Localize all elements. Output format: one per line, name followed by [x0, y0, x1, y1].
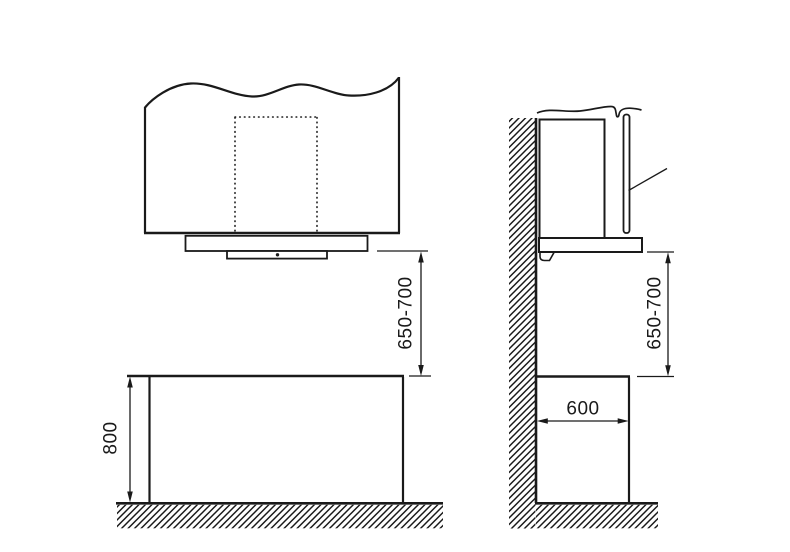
counter-side [535, 377, 630, 503]
hood-side-profile [537, 107, 667, 261]
front-clearance-dimension-label: 650-700 [397, 276, 416, 349]
floor-side [535, 503, 658, 528]
hood-front-outline [144, 77, 400, 233]
hood-center-mark [276, 253, 279, 256]
side-clearance-dimension-label: 650-700 [646, 276, 665, 349]
wall-hatch [509, 118, 536, 529]
hood-canopy-bar [186, 236, 368, 251]
glass-panel [624, 115, 630, 234]
glass-panel-leader-line [629, 169, 668, 191]
side-view [509, 107, 667, 529]
hood-mounting-hook [540, 252, 554, 261]
hood-front-break-line [145, 78, 399, 108]
front-view [116, 77, 443, 528]
duct-dashed-outline [235, 117, 317, 232]
counter-height-dimension [127, 377, 133, 503]
installation-diagram: 650-700 800 650-700 600 [0, 0, 790, 552]
hood-side-bottom-bar [539, 238, 642, 252]
counter-front [127, 376, 404, 503]
wall-section [509, 118, 536, 529]
counter-height-dimension-label: 800 [102, 421, 121, 454]
floor-front [116, 503, 443, 528]
hood-side-body [540, 120, 605, 239]
counter-depth-dimension-label: 600 [566, 400, 599, 419]
